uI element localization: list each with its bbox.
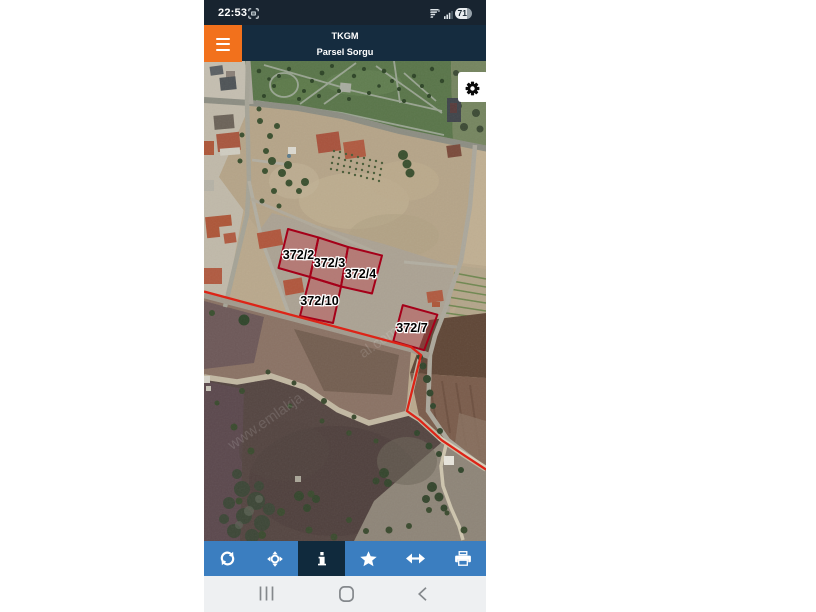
svg-text:372/2: 372/2: [283, 248, 315, 262]
svg-text:372/10: 372/10: [300, 294, 339, 308]
svg-text:372/7: 372/7: [396, 321, 428, 335]
svg-text:372/3: 372/3: [314, 256, 346, 270]
svg-text:372/4: 372/4: [345, 267, 377, 281]
svg-text:5: 5: [438, 9, 440, 13]
